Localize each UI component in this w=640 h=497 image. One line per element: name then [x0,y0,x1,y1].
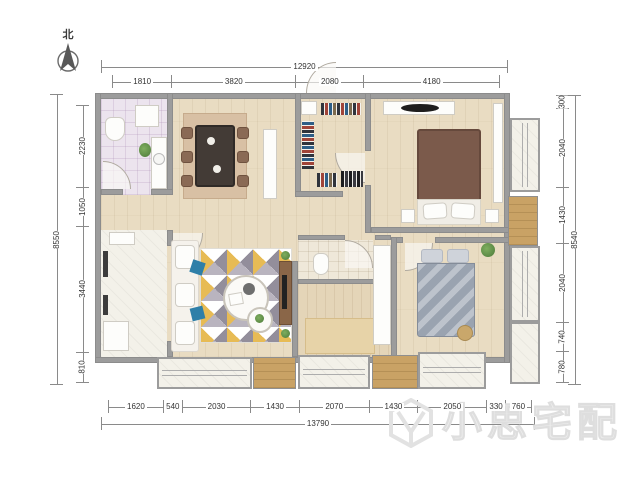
dim-segment: 1620 [108,400,163,413]
tatami-mat [305,318,375,354]
watermark-text: 小思宅配 [442,403,622,443]
wall [391,237,397,363]
pillow [422,202,447,220]
dim-value: 1430 [383,403,405,411]
sofa-cushion [175,321,195,345]
dim-value: 2040 [558,139,568,157]
ac-platform [508,196,538,246]
dim-segment: 3440 [76,226,89,352]
balcony-cabinet [109,232,135,245]
dim-value: 330 [487,403,504,411]
dim-left-total: 8550 [50,94,63,385]
dim-value: 540 [164,403,181,411]
bay-window [510,118,540,192]
dim-value: 2230 [78,138,88,156]
dim-value: 3440 [78,280,88,298]
dim-right-total: 8540 [568,95,581,385]
table-tray [228,292,244,306]
floor-plan-page: 北 12920 1810382020804180 8550 2230105034… [0,0,640,497]
clothes-rack [302,121,314,169]
dim-segment: 540 [163,400,182,413]
plant [281,329,290,338]
dining-table [195,125,235,187]
sofa-cushion [175,283,195,307]
window-glass [522,251,528,317]
dim-segment: 2230 [76,105,89,187]
plant [481,243,495,257]
tv [401,104,439,112]
dim-value: 740 [558,330,568,343]
dim-value: 2040 [558,274,568,292]
wall [375,235,391,240]
dim-segment: 1050 [76,187,89,226]
nightstand [401,209,415,223]
dim-segment: 3820 [171,75,295,88]
wall [365,185,371,233]
dim-value: 1620 [125,403,147,411]
dim-segment: 8550 [50,94,63,384]
tv [282,275,287,309]
washing-machine [103,321,129,351]
compass-north-label: 北 [63,30,74,41]
nightstand [485,209,499,223]
dim-value: 4180 [421,78,443,86]
dim-value: 810 [78,361,88,374]
dim-value: 760 [510,403,527,411]
toilet [313,253,329,275]
bay-window [510,322,540,384]
dim-value: 1430 [264,403,286,411]
dim-top-total: 12920 [101,60,508,73]
dining-chair [181,175,193,187]
sideboard-cabinet [263,129,277,199]
dim-value: 8540 [570,231,580,249]
window-glass [162,370,247,376]
window-glass [423,367,481,373]
dim-segment: 8540 [568,95,581,384]
pillow [450,202,475,220]
dim-value: 1050 [78,198,88,216]
north-arrow-icon [55,42,81,76]
dim-segment: 810 [76,352,89,382]
wall [95,93,101,363]
plate [213,165,221,173]
watermark: 小思宅配 [388,398,622,448]
dim-value: 2050 [441,403,463,411]
wall [295,191,343,197]
dim-left-segments: 223010503440810 [76,105,89,383]
bay-window [510,246,540,322]
window-glass [303,369,365,375]
closet [373,245,391,345]
pillow [421,249,443,263]
plant [281,251,290,260]
shoe-cabinet [301,101,317,115]
dim-segment: 300 [556,95,569,108]
dim-value: 2070 [323,403,345,411]
dim-segment: 12920 [101,60,507,73]
dim-value: 300 [558,95,568,108]
dim-segment: 2070 [299,400,369,413]
dim-value: 1430 [558,206,568,224]
plate [207,137,215,145]
compass: 北 [52,30,84,76]
dim-value: 8550 [52,231,62,249]
master-bed-duvet [417,129,481,207]
dining-chair [181,151,193,163]
dim-segment: 1430 [250,400,299,413]
floor-plan [95,93,510,363]
dining-chair [237,151,249,163]
wall [95,93,510,99]
wall [292,261,298,357]
wall [167,93,173,195]
toilet [105,117,125,141]
table-decor [243,283,255,295]
dim-segment: 4180 [363,75,499,88]
plant [139,143,151,157]
pouf [457,325,473,341]
dim-segment: 1810 [112,75,171,88]
bay-window [418,352,486,389]
dim-value: 2030 [206,403,228,411]
wood-ledge [372,355,418,389]
wall [365,93,371,151]
wood-ledge [253,357,296,389]
window-glass [522,123,528,187]
dim-value: 13790 [305,420,331,428]
wardrobe [493,103,503,203]
clothes-rack [341,171,363,187]
dining-chair [181,127,193,139]
sink [153,153,165,165]
wall [371,227,510,233]
plant [255,314,264,323]
radiator [103,251,108,277]
wall [435,237,510,243]
washing-machine [135,105,159,127]
wall [151,189,173,195]
wall [101,189,123,195]
dining-chair [237,127,249,139]
wall [298,235,345,240]
clothes-rack [321,103,361,115]
pillow [447,249,469,263]
dim-segment: 2030 [182,400,250,413]
clothes-rack [317,173,337,187]
dim-value: 12920 [291,63,317,71]
bay-window [298,355,370,389]
dim-value: 1810 [131,78,153,86]
dim-value: 3820 [223,78,245,86]
dining-chair [237,175,249,187]
dim-value: 2080 [319,78,341,86]
dim-value: 780 [558,360,568,373]
radiator [103,295,108,315]
bay-window [157,357,252,389]
